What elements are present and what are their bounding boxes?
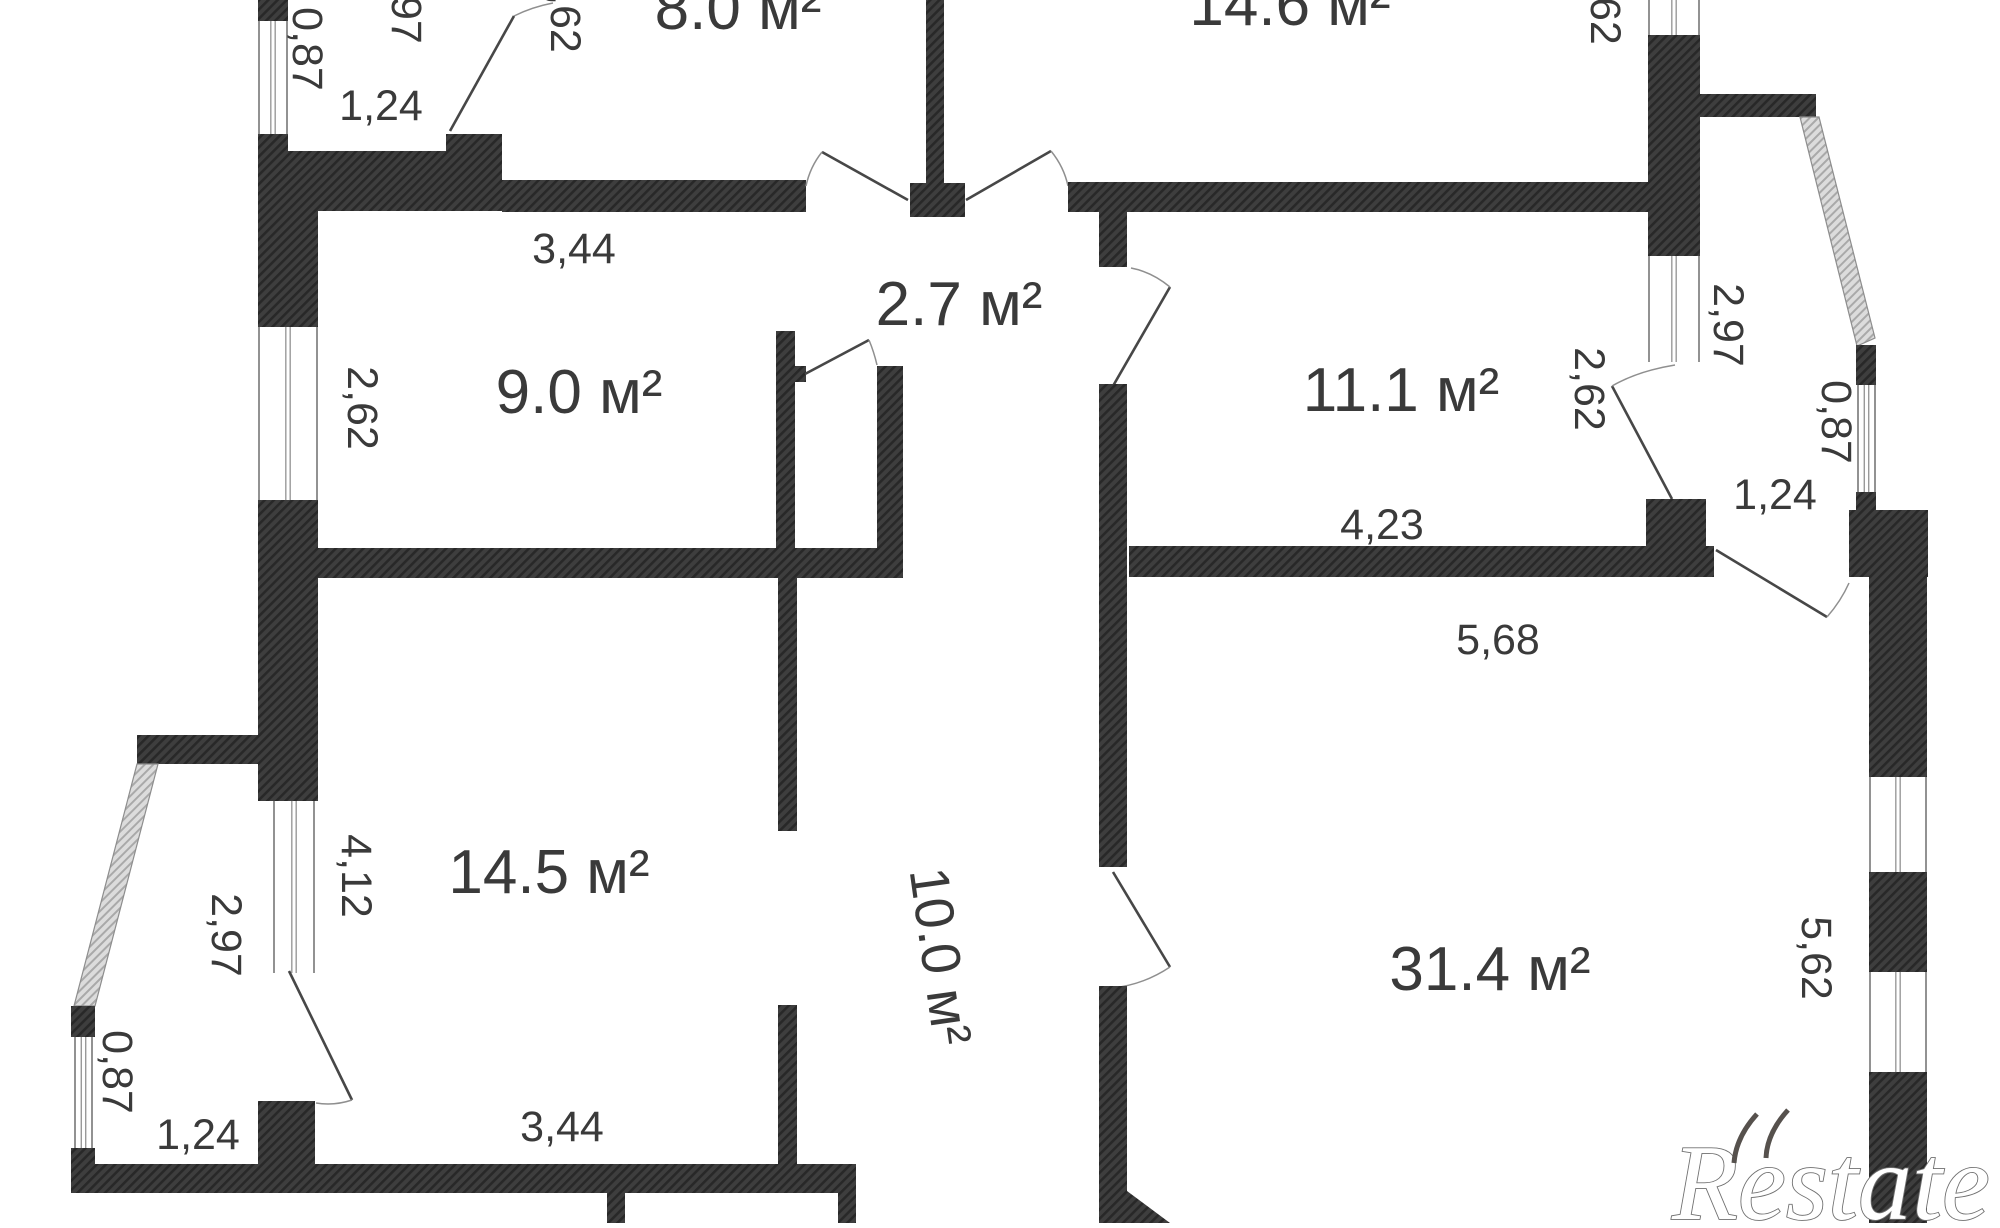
svg-text:5,62: 5,62 [1792, 916, 1840, 1000]
svg-text:3,44: 3,44 [532, 225, 616, 273]
svg-text:31.4 м²: 31.4 м² [1389, 935, 1590, 1004]
svg-text:2,97: 2,97 [1704, 283, 1752, 367]
svg-text:1,24: 1,24 [156, 1111, 240, 1159]
svg-text:2,62: 2,62 [541, 0, 589, 53]
svg-text:2,97: 2,97 [202, 893, 250, 977]
svg-text:4,23: 4,23 [1340, 501, 1424, 549]
svg-text:0,87: 0,87 [1812, 380, 1860, 464]
svg-text:9.0 м²: 9.0 м² [496, 358, 663, 427]
svg-text:14.5 м²: 14.5 м² [448, 838, 649, 907]
svg-text:0,87: 0,87 [93, 1030, 141, 1114]
svg-text:8.0 м²: 8.0 м² [655, 0, 822, 43]
svg-text:1,24: 1,24 [339, 82, 423, 130]
svg-text:2,62: 2,62 [1581, 0, 1629, 45]
svg-text:4,12: 4,12 [332, 834, 380, 918]
svg-text:14.6 м²: 14.6 м² [1189, 0, 1390, 39]
svg-text:2.7 м²: 2.7 м² [876, 270, 1043, 339]
svg-text:2,97: 2,97 [382, 0, 430, 44]
svg-text:5,68: 5,68 [1456, 616, 1540, 664]
svg-text:11.1 м²: 11.1 м² [1303, 356, 1500, 425]
svg-text:1,24: 1,24 [1733, 471, 1817, 519]
svg-text:2,62: 2,62 [1565, 347, 1613, 431]
svg-text:2,62: 2,62 [338, 366, 386, 450]
svg-text:3,44: 3,44 [520, 1103, 604, 1151]
svg-text:0,87: 0,87 [283, 7, 331, 91]
svg-text:Restate: Restate [1671, 1124, 1990, 1223]
